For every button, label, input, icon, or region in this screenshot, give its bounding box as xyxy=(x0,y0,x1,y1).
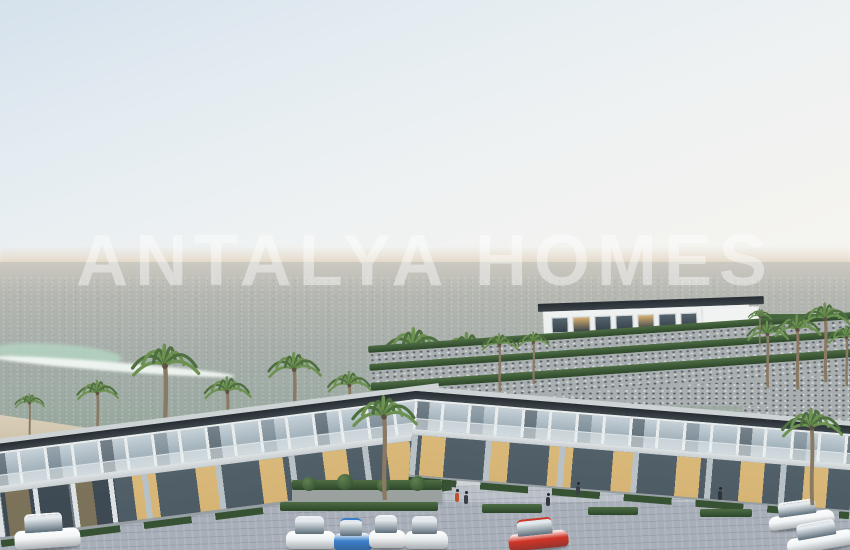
person xyxy=(546,497,550,506)
car-cabin xyxy=(295,516,324,534)
car-blue-sedan xyxy=(334,521,372,550)
person xyxy=(718,491,722,500)
palm-tree xyxy=(335,388,435,500)
car-white-suv-left xyxy=(13,514,81,550)
plaza-hedge xyxy=(588,507,638,515)
car-cabin xyxy=(24,512,64,534)
car-white-pickup xyxy=(369,518,406,549)
car-cabin xyxy=(412,516,437,534)
car-white-sedan-2 xyxy=(405,519,448,550)
plaza-hedge xyxy=(700,509,752,517)
car-cabin xyxy=(516,516,552,537)
palm-tree xyxy=(818,321,850,386)
bush xyxy=(302,477,316,491)
car-white-sedan-1 xyxy=(286,519,336,550)
person xyxy=(464,495,468,504)
watermark-text: ANTALYA HOMES xyxy=(0,220,850,302)
car-red-coupe xyxy=(507,518,570,550)
architectural-rendering: ANTALYA HOMES xyxy=(0,0,850,550)
plaza-hedge xyxy=(482,504,542,513)
car-cabin xyxy=(340,518,362,536)
person xyxy=(576,486,580,495)
palm-tree xyxy=(509,328,559,384)
plaza-hedge xyxy=(280,502,438,511)
car-cabin xyxy=(375,515,396,533)
person xyxy=(455,493,459,502)
palm-tree xyxy=(766,401,850,505)
palm-tree xyxy=(742,306,778,346)
